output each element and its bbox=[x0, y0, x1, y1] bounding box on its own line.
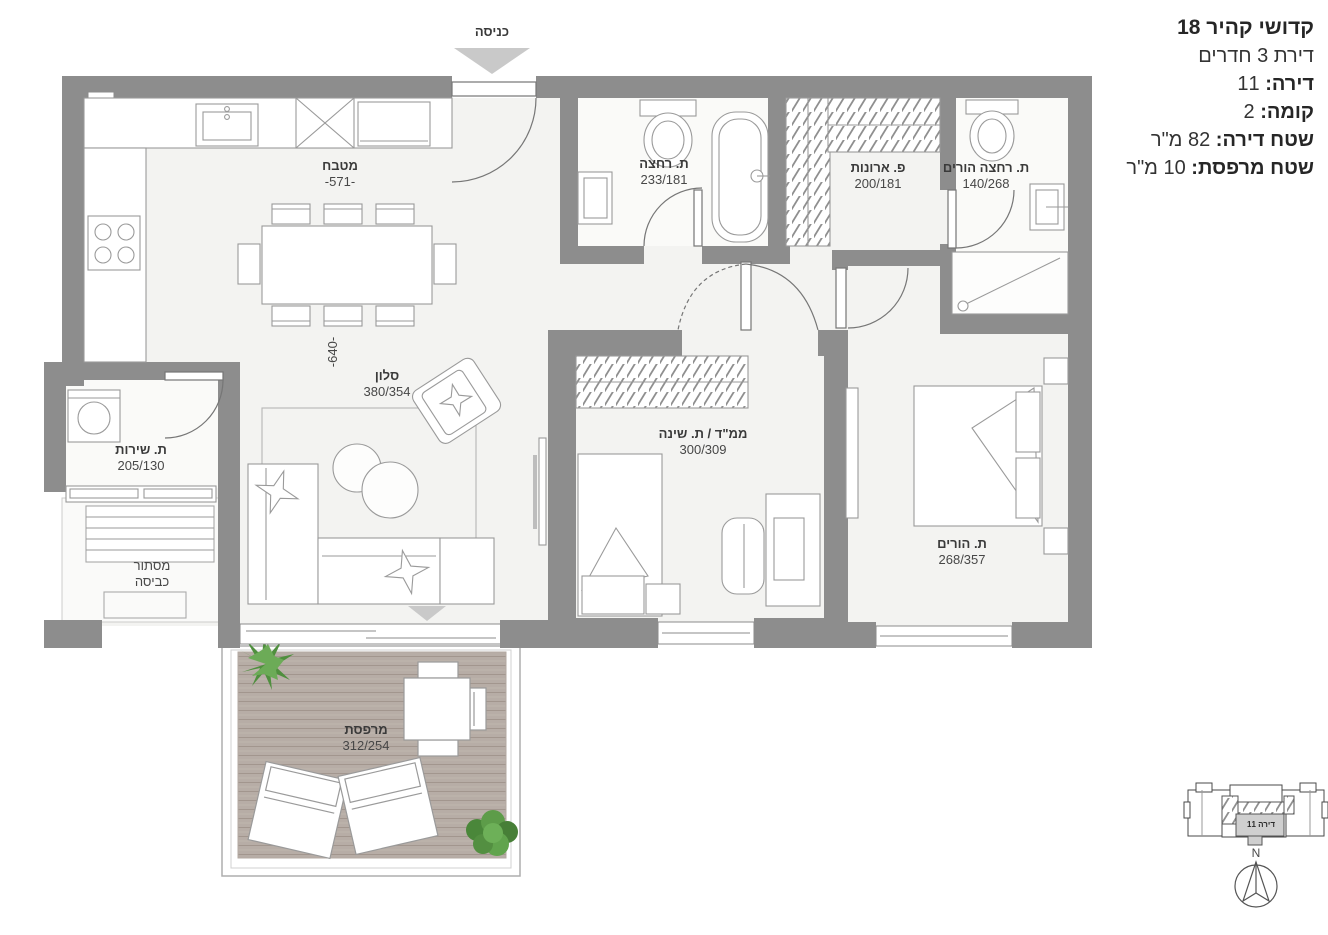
label-laundry: מסתורכביסה bbox=[134, 558, 171, 590]
keyplan bbox=[1184, 783, 1328, 845]
parents-dresser bbox=[846, 388, 858, 518]
label-entrance: כניסה bbox=[475, 24, 509, 40]
laundry-louver bbox=[86, 506, 214, 562]
side-table bbox=[440, 538, 494, 604]
label-bath: ת. רחצה233/181 bbox=[639, 156, 688, 188]
apartment-number: דירה: 11 bbox=[1054, 70, 1314, 98]
balcony-sliding-door bbox=[240, 624, 502, 644]
fridge bbox=[358, 102, 430, 146]
tv-unit bbox=[539, 438, 546, 545]
label-service-bath: ת. שירות205/130 bbox=[115, 442, 167, 474]
cooktop bbox=[88, 216, 140, 270]
service-door bbox=[165, 372, 223, 380]
balcony-area: שטח מרפסת: 10 מ"ר bbox=[1054, 154, 1314, 182]
dining-table bbox=[262, 226, 432, 304]
balcony bbox=[222, 636, 520, 876]
parents-door bbox=[836, 268, 846, 328]
coffee-table bbox=[362, 462, 418, 518]
label-kitchen: מטבח-571- bbox=[322, 158, 358, 190]
label-living: סלון380/354 bbox=[364, 368, 411, 400]
label-parents-bath: ת. רחצה הורים140/268 bbox=[943, 160, 1029, 192]
entrance-door bbox=[452, 82, 536, 96]
label-mamad: ממ"ד / ת. שינה300/309 bbox=[659, 426, 748, 458]
entrance-arrow-icon bbox=[454, 48, 530, 74]
nightstand bbox=[1044, 528, 1068, 554]
label-balcony: מרפסת312/254 bbox=[343, 722, 390, 754]
north-label: N bbox=[1252, 846, 1261, 860]
nightstand bbox=[1044, 358, 1068, 384]
apartment-area: שטח דירה: 82 מ"ר bbox=[1054, 126, 1314, 154]
title-block: קדושי קהיר 18 דירת 3 חדרים דירה: 11 קומה… bbox=[1054, 14, 1314, 182]
north-compass-icon bbox=[1235, 862, 1277, 907]
label-parents-room: ת. הורים268/357 bbox=[937, 536, 987, 568]
floor-number: קומה: 2 bbox=[1054, 98, 1314, 126]
keyplan-unit-label: דירה 11 bbox=[1247, 820, 1275, 829]
floorplan-page: קדושי קהיר 18 דירת 3 חדרים דירה: 11 קומה… bbox=[0, 0, 1328, 935]
mamad-door bbox=[741, 262, 751, 330]
project-title: קדושי קהיר 18 bbox=[1054, 14, 1314, 42]
apartment-type: דירת 3 חדרים bbox=[1054, 42, 1314, 70]
label-closets: פ. ארונות200/181 bbox=[851, 160, 906, 192]
label-kitchen-width: -640- bbox=[325, 337, 341, 367]
mamad-nightstand bbox=[646, 584, 680, 614]
bath-door bbox=[694, 190, 702, 246]
desk-chair bbox=[722, 518, 764, 594]
parents-bath-door bbox=[948, 190, 956, 248]
